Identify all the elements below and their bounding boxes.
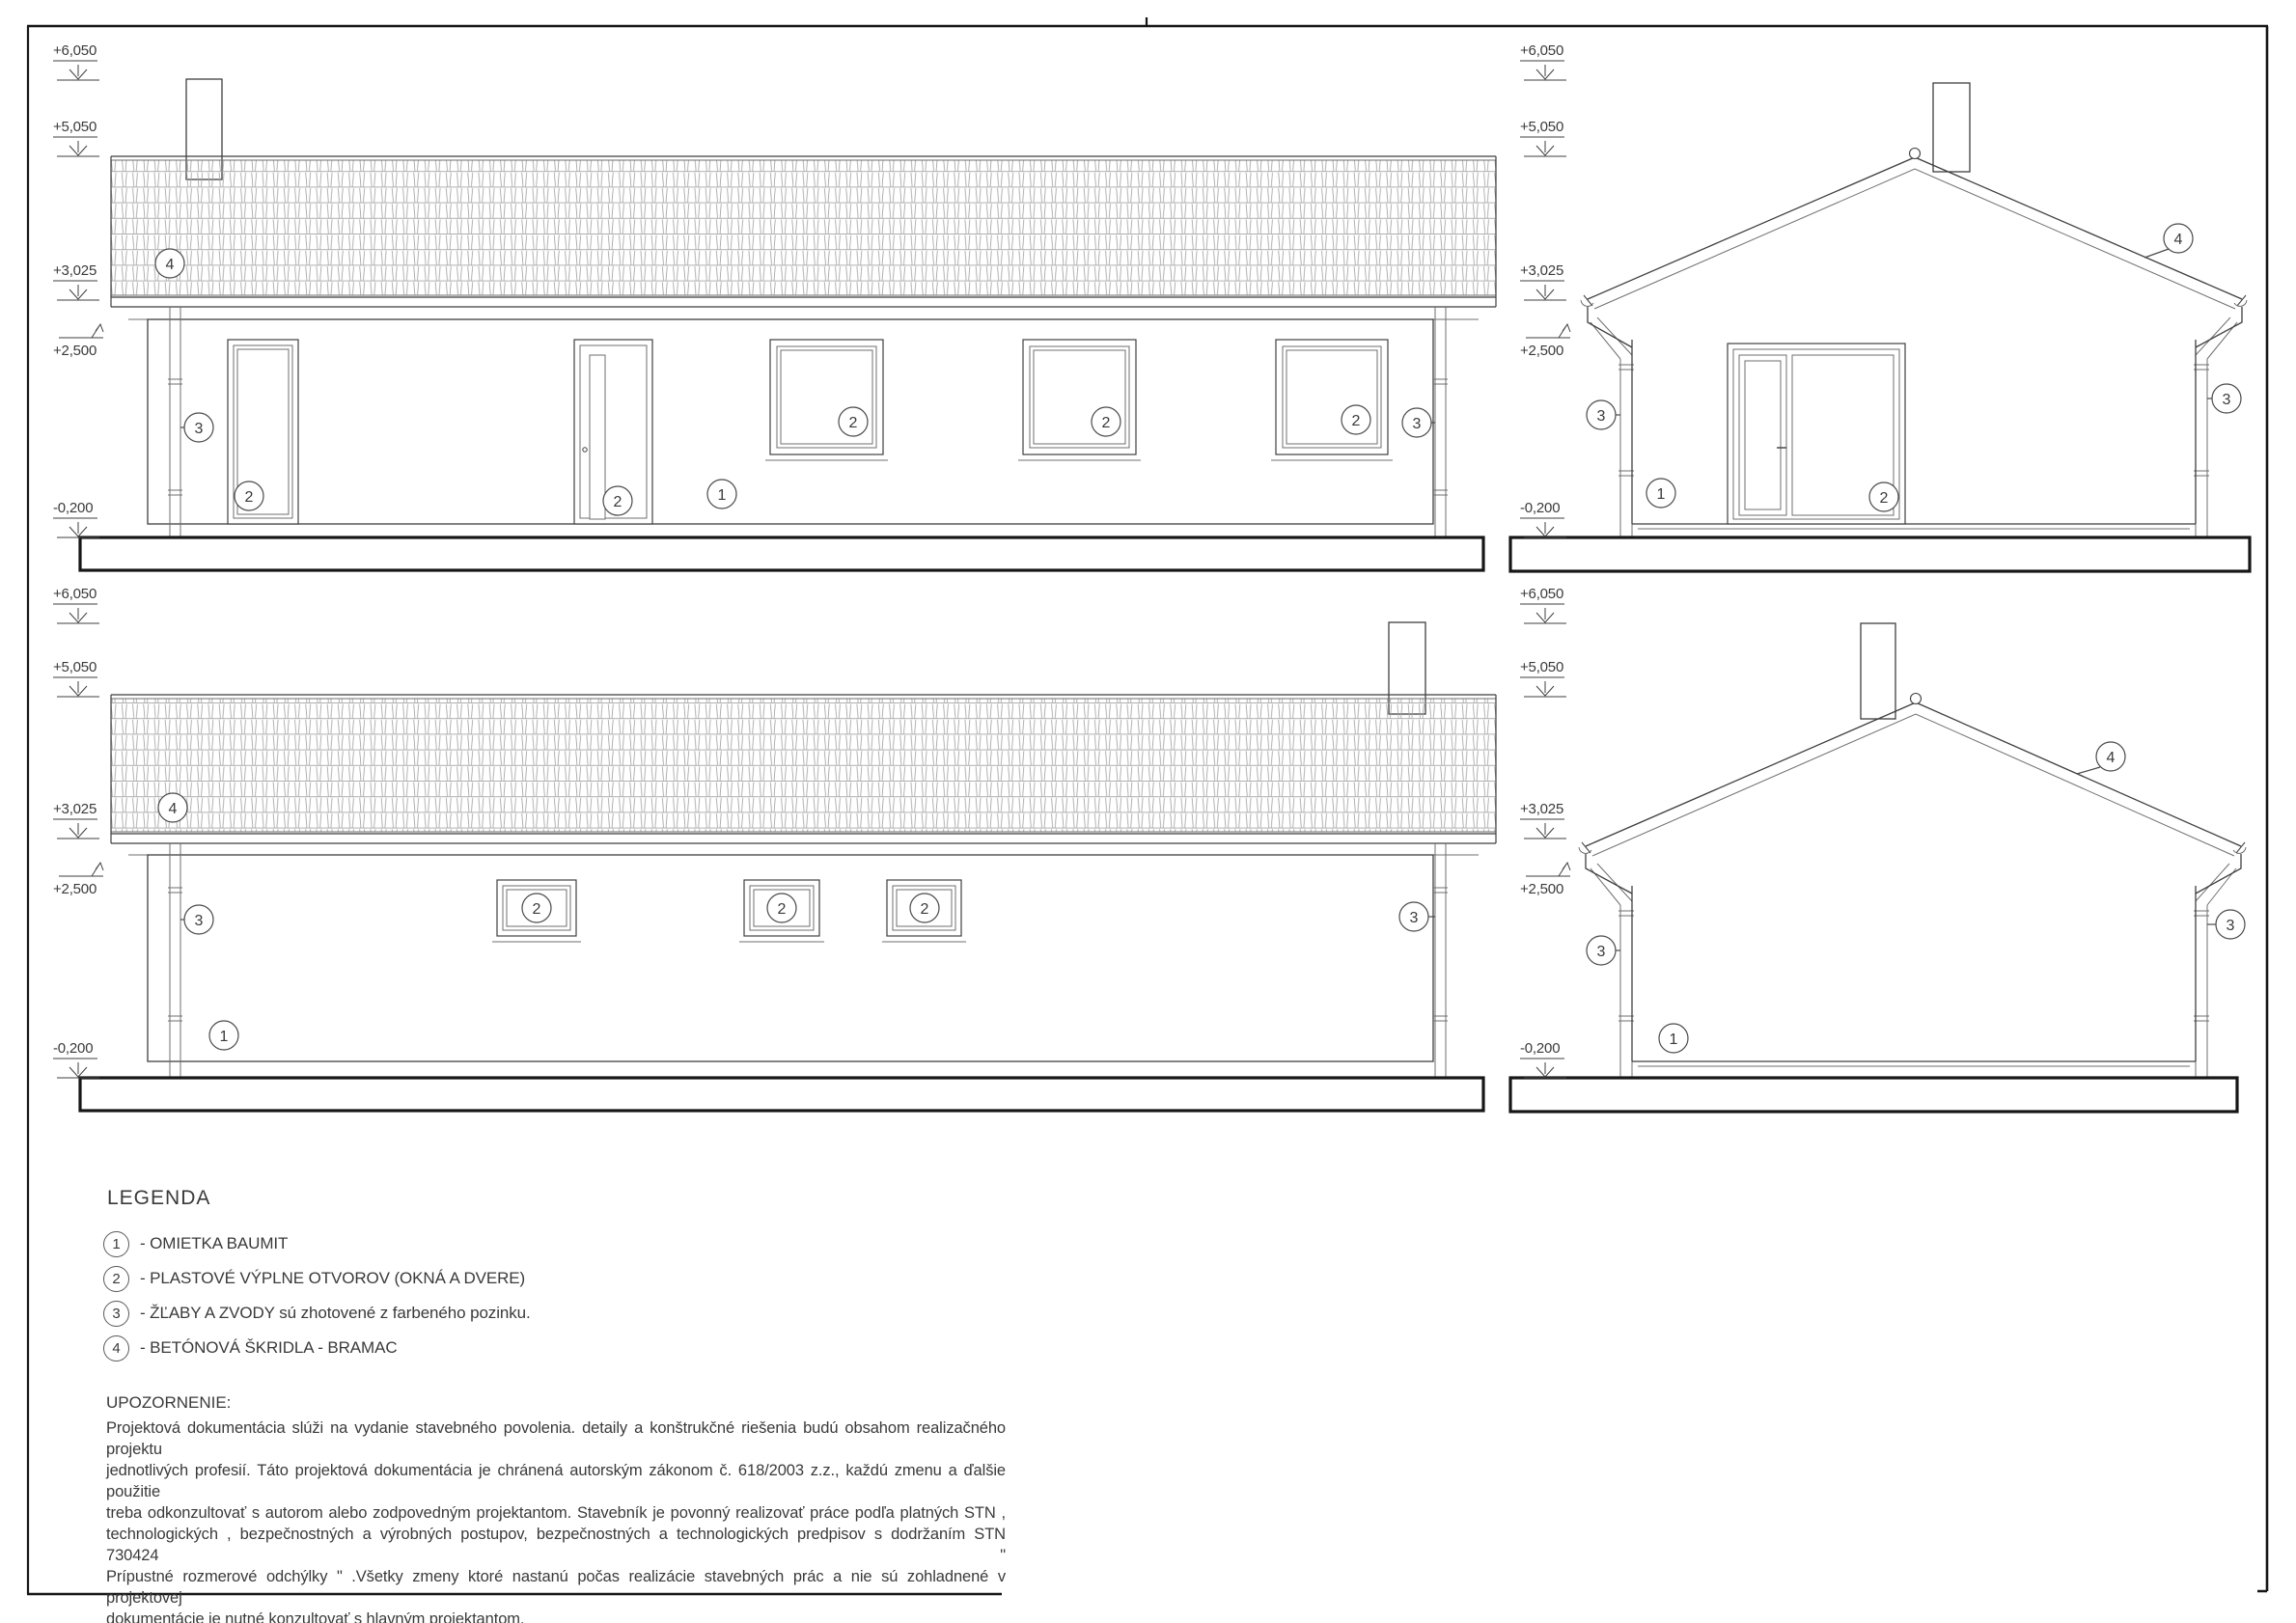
svg-text:3: 3 (1597, 944, 1606, 960)
warning-note-title: UPOZORNENIE: (106, 1393, 1006, 1413)
level-marker-3025: +3,025 (53, 801, 99, 839)
svg-text:+2,500: +2,500 (53, 343, 97, 359)
legend-label: - OMIETKA BAUMIT (129, 1234, 288, 1253)
level-marker-2500: +2,500 (1520, 863, 1570, 897)
foundation (80, 537, 1483, 570)
level-marker-m0200: -0,200 (53, 500, 99, 537)
rear-elevation (80, 622, 1496, 1111)
callout-2: 2 (839, 407, 868, 436)
gutter (111, 834, 1496, 843)
legend-item: 2 - PLASTOVÉ VÝPLNE OTVOROV (OKNÁ A DVER… (103, 1266, 531, 1291)
level-marker-3025: +3,025 (1520, 801, 1566, 839)
svg-text:1: 1 (220, 1029, 229, 1045)
window-2 (1018, 340, 1141, 460)
svg-text:3: 3 (1597, 408, 1606, 425)
foundation (1510, 1078, 2237, 1112)
roof-tiles (111, 699, 1496, 832)
level-marker-5050: +5,050 (1520, 659, 1566, 697)
svg-text:+3,025: +3,025 (53, 801, 97, 817)
svg-text:-0,200: -0,200 (53, 500, 93, 516)
svg-text:+3,025: +3,025 (1520, 262, 1563, 279)
level-marker-5050: +5,050 (1520, 119, 1566, 156)
level-marker-5050: +5,050 (53, 119, 99, 156)
callout-4: 4 (155, 249, 184, 278)
legend: LEGENDA 1 - OMIETKA BAUMIT 2 - PLASTOVÉ … (103, 1187, 531, 1370)
svg-text:+2,500: +2,500 (1520, 343, 1563, 359)
downpipe-right (2194, 300, 2247, 536)
chimney (1933, 83, 1970, 172)
callout-3: 3 (2207, 910, 2245, 939)
legend-label: - BETÓNOVÁ ŠKRIDLA - BRAMAC (129, 1338, 398, 1358)
level-marker-2500: +2,500 (53, 863, 103, 897)
level-marker-m0200: -0,200 (1520, 500, 1566, 537)
svg-text:2: 2 (245, 489, 254, 506)
downpipe-right (1433, 307, 1448, 536)
svg-text:+5,050: +5,050 (1520, 659, 1563, 675)
foundation (80, 1078, 1483, 1111)
svg-text:2: 2 (778, 901, 787, 918)
callout-3: 3 (1587, 400, 1620, 429)
window-1 (765, 340, 888, 460)
svg-text:3: 3 (1410, 910, 1419, 926)
roof-tiles (111, 160, 1496, 295)
svg-text:3: 3 (195, 913, 204, 929)
svg-text:+3,025: +3,025 (1520, 801, 1563, 817)
legend-item: 3 - ŽĽABY A ZVODY sú zhotovené z farbené… (103, 1301, 531, 1326)
legend-callout-2: 2 (103, 1266, 129, 1292)
elevations-drawing: +6,050 +5,050 +3,025 +2,500 -0,200 +6,05… (0, 0, 2296, 1623)
legend-item: 1 - OMIETKA BAUMIT (103, 1231, 531, 1256)
svg-text:2: 2 (533, 901, 541, 918)
svg-text:-0,200: -0,200 (53, 1040, 93, 1057)
level-markers-row1-left: +6,050 +5,050 +3,025 +2,500 -0,200 (53, 42, 103, 537)
warning-note: UPOZORNENIE: Projektová dokumentácia slú… (106, 1393, 1006, 1623)
svg-text:2: 2 (1102, 415, 1111, 431)
svg-text:-0,200: -0,200 (1520, 1040, 1560, 1057)
legend-label: - PLASTOVÉ VÝPLNE OTVOROV (OKNÁ A DVERE) (129, 1269, 525, 1288)
legend-title: LEGENDA (107, 1187, 531, 1210)
legend-label: - ŽĽABY A ZVODY sú zhotovené z farbeného… (129, 1304, 531, 1323)
svg-text:+2,500: +2,500 (53, 881, 97, 897)
svg-text:+6,050: +6,050 (1520, 42, 1563, 59)
callout-1: 1 (707, 480, 736, 509)
svg-text:3: 3 (195, 421, 204, 437)
callout-3: 3 (2207, 384, 2241, 413)
svg-text:4: 4 (2107, 750, 2116, 766)
callout-2: 2 (522, 894, 551, 922)
level-marker-6050: +6,050 (53, 42, 99, 80)
svg-text:+2,500: +2,500 (1520, 881, 1563, 897)
callout-1: 1 (209, 1021, 238, 1050)
callout-4: 4 (158, 793, 187, 822)
door-handle (583, 448, 587, 452)
wall (1588, 307, 2242, 529)
level-markers-row2-left: +6,050 +5,050 +3,025 +2,500 -0,200 (53, 586, 103, 1078)
svg-text:4: 4 (169, 801, 178, 817)
level-marker-5050: +5,050 (53, 659, 99, 697)
callout-2: 2 (767, 894, 796, 922)
level-marker-6050: +6,050 (1520, 586, 1566, 623)
svg-text:+6,050: +6,050 (1520, 586, 1563, 602)
ridge-finial (1910, 149, 1921, 159)
gable-roof (1584, 157, 2246, 309)
svg-text:+5,050: +5,050 (53, 659, 97, 675)
svg-text:1: 1 (718, 487, 727, 504)
warning-note-line: Prípustné rozmerové odchýlky " .Všetky z… (106, 1566, 1006, 1609)
downpipe-right (1433, 843, 1448, 1078)
callout-3: 3 (1587, 936, 1620, 965)
level-marker-3025: +3,025 (1520, 262, 1566, 300)
callout-2: 2 (1092, 407, 1120, 436)
level-marker-2500: +2,500 (53, 324, 103, 359)
callout-2: 2 (910, 894, 939, 922)
svg-text:4: 4 (2174, 232, 2183, 248)
level-marker-3025: +3,025 (53, 262, 99, 300)
front-elevation (80, 79, 1496, 570)
callout-2: 2 (1342, 405, 1370, 434)
warning-note-line: Projektová dokumentácia slúži na vydanie… (106, 1417, 1006, 1460)
callout-2: 2 (1869, 482, 1898, 511)
svg-text:+6,050: +6,050 (53, 42, 97, 59)
chimney (1861, 623, 1895, 719)
warning-note-line: treba odkonzultovať s autorom alebo zodp… (106, 1502, 1006, 1524)
svg-text:1: 1 (1670, 1032, 1678, 1048)
legend-callout-1: 1 (103, 1231, 129, 1257)
level-marker-6050: +6,050 (53, 586, 99, 623)
ridge-finial (1911, 694, 1922, 704)
legend-callout-3: 3 (103, 1301, 129, 1327)
foundation (1510, 537, 2250, 571)
callout-2: 2 (235, 481, 263, 510)
svg-text:2: 2 (849, 415, 858, 431)
svg-text:3: 3 (1413, 416, 1422, 432)
warning-note-line: jednotlivých profesií. Táto projektová d… (106, 1460, 1006, 1502)
level-marker-m0200: -0,200 (1520, 1040, 1566, 1078)
svg-text:+6,050: +6,050 (53, 586, 97, 602)
drawing-sheet: +6,050 +5,050 +3,025 +2,500 -0,200 +6,05… (0, 0, 2296, 1623)
level-marker-m0200: -0,200 (53, 1040, 99, 1078)
warning-note-line: technologických , bezpečnostných a výrob… (106, 1524, 1006, 1566)
legend-callout-4: 4 (103, 1335, 129, 1362)
svg-text:2: 2 (1352, 413, 1361, 429)
svg-text:4: 4 (166, 257, 175, 273)
svg-text:3: 3 (2223, 392, 2231, 408)
svg-text:+5,050: +5,050 (53, 119, 97, 135)
downpipe-right (2194, 847, 2246, 1078)
legend-item: 4 - BETÓNOVÁ ŠKRIDLA - BRAMAC (103, 1335, 531, 1361)
svg-text:+3,025: +3,025 (53, 262, 97, 279)
warning-note-line: dokumentácie je nutné konzultovať s hlav… (106, 1609, 1006, 1623)
gutter (111, 297, 1496, 307)
side-elevation-2 (1510, 623, 2246, 1112)
gable-roof (1582, 702, 2245, 856)
level-marker-2500: +2,500 (1520, 324, 1570, 359)
callout-4: 4 (2077, 742, 2125, 774)
window-3 (1271, 340, 1393, 460)
level-marker-6050: +6,050 (1520, 42, 1566, 80)
level-markers-row2-right: +6,050 +5,050 +3,025 +2,500 -0,200 (1520, 586, 1570, 1078)
level-markers-row1-right: +6,050 +5,050 +3,025 +2,500 -0,200 (1520, 42, 1570, 537)
svg-text:3: 3 (2227, 918, 2235, 934)
callout-2: 2 (603, 486, 632, 515)
svg-text:-0,200: -0,200 (1520, 500, 1560, 516)
callout-1: 1 (1646, 479, 1675, 508)
svg-text:+5,050: +5,050 (1520, 119, 1563, 135)
svg-text:2: 2 (1880, 490, 1889, 507)
callout-1: 1 (1659, 1024, 1688, 1053)
svg-text:1: 1 (1657, 486, 1666, 503)
callout-4: 4 (2144, 224, 2193, 258)
svg-text:2: 2 (614, 494, 622, 510)
svg-text:2: 2 (921, 901, 929, 918)
